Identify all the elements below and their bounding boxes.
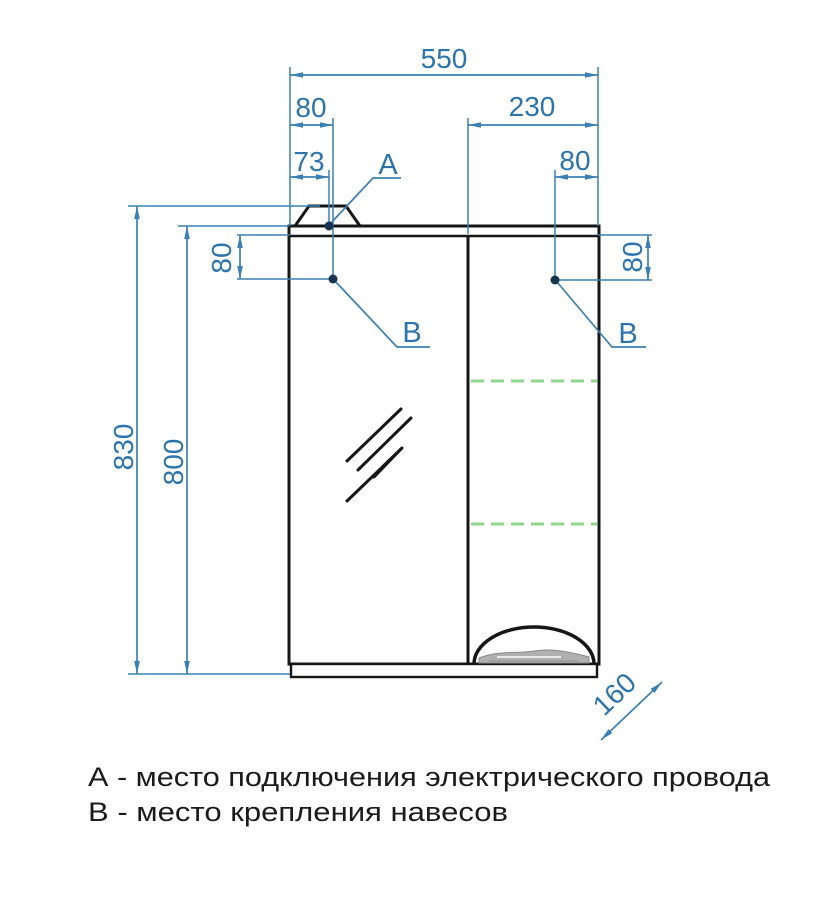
bottom-plinth <box>291 664 597 677</box>
legend: А - место подключения электрического про… <box>88 762 771 827</box>
dim-label-800: 800 <box>158 439 189 486</box>
point-b-right-dot <box>551 276 560 285</box>
point-a-dot <box>325 222 334 231</box>
dim-label-80-top-right: 80 <box>559 145 590 176</box>
dim-label-80-top-left: 80 <box>295 92 326 123</box>
dim-label-230: 230 <box>509 91 556 122</box>
dim-label-550: 550 <box>421 43 468 74</box>
point-b-left-label: В <box>402 317 421 349</box>
technical-drawing: 550 80 73 230 80 830 800 <box>0 0 837 900</box>
cabinet-body <box>289 226 599 664</box>
dim-label-80-hinge-left: 80 <box>206 242 237 273</box>
dim-overall-width: 550 <box>290 43 598 226</box>
legend-line-a: А - место подключения электрического про… <box>88 762 771 792</box>
legend-line-b: В - место крепления навесов <box>88 797 508 827</box>
drawing-canvas: 550 80 73 230 80 830 800 <box>0 0 837 900</box>
dim-label-80-hinge-right: 80 <box>617 241 648 272</box>
point-a-marker: А <box>325 149 402 231</box>
point-b-left-dot <box>329 275 338 284</box>
dim-cabinet-height-800: 800 <box>158 226 289 674</box>
dim-label-830: 830 <box>108 424 139 471</box>
point-b-right-label: В <box>618 318 637 350</box>
dim-label-73: 73 <box>293 146 324 177</box>
point-a-label: А <box>378 149 398 181</box>
